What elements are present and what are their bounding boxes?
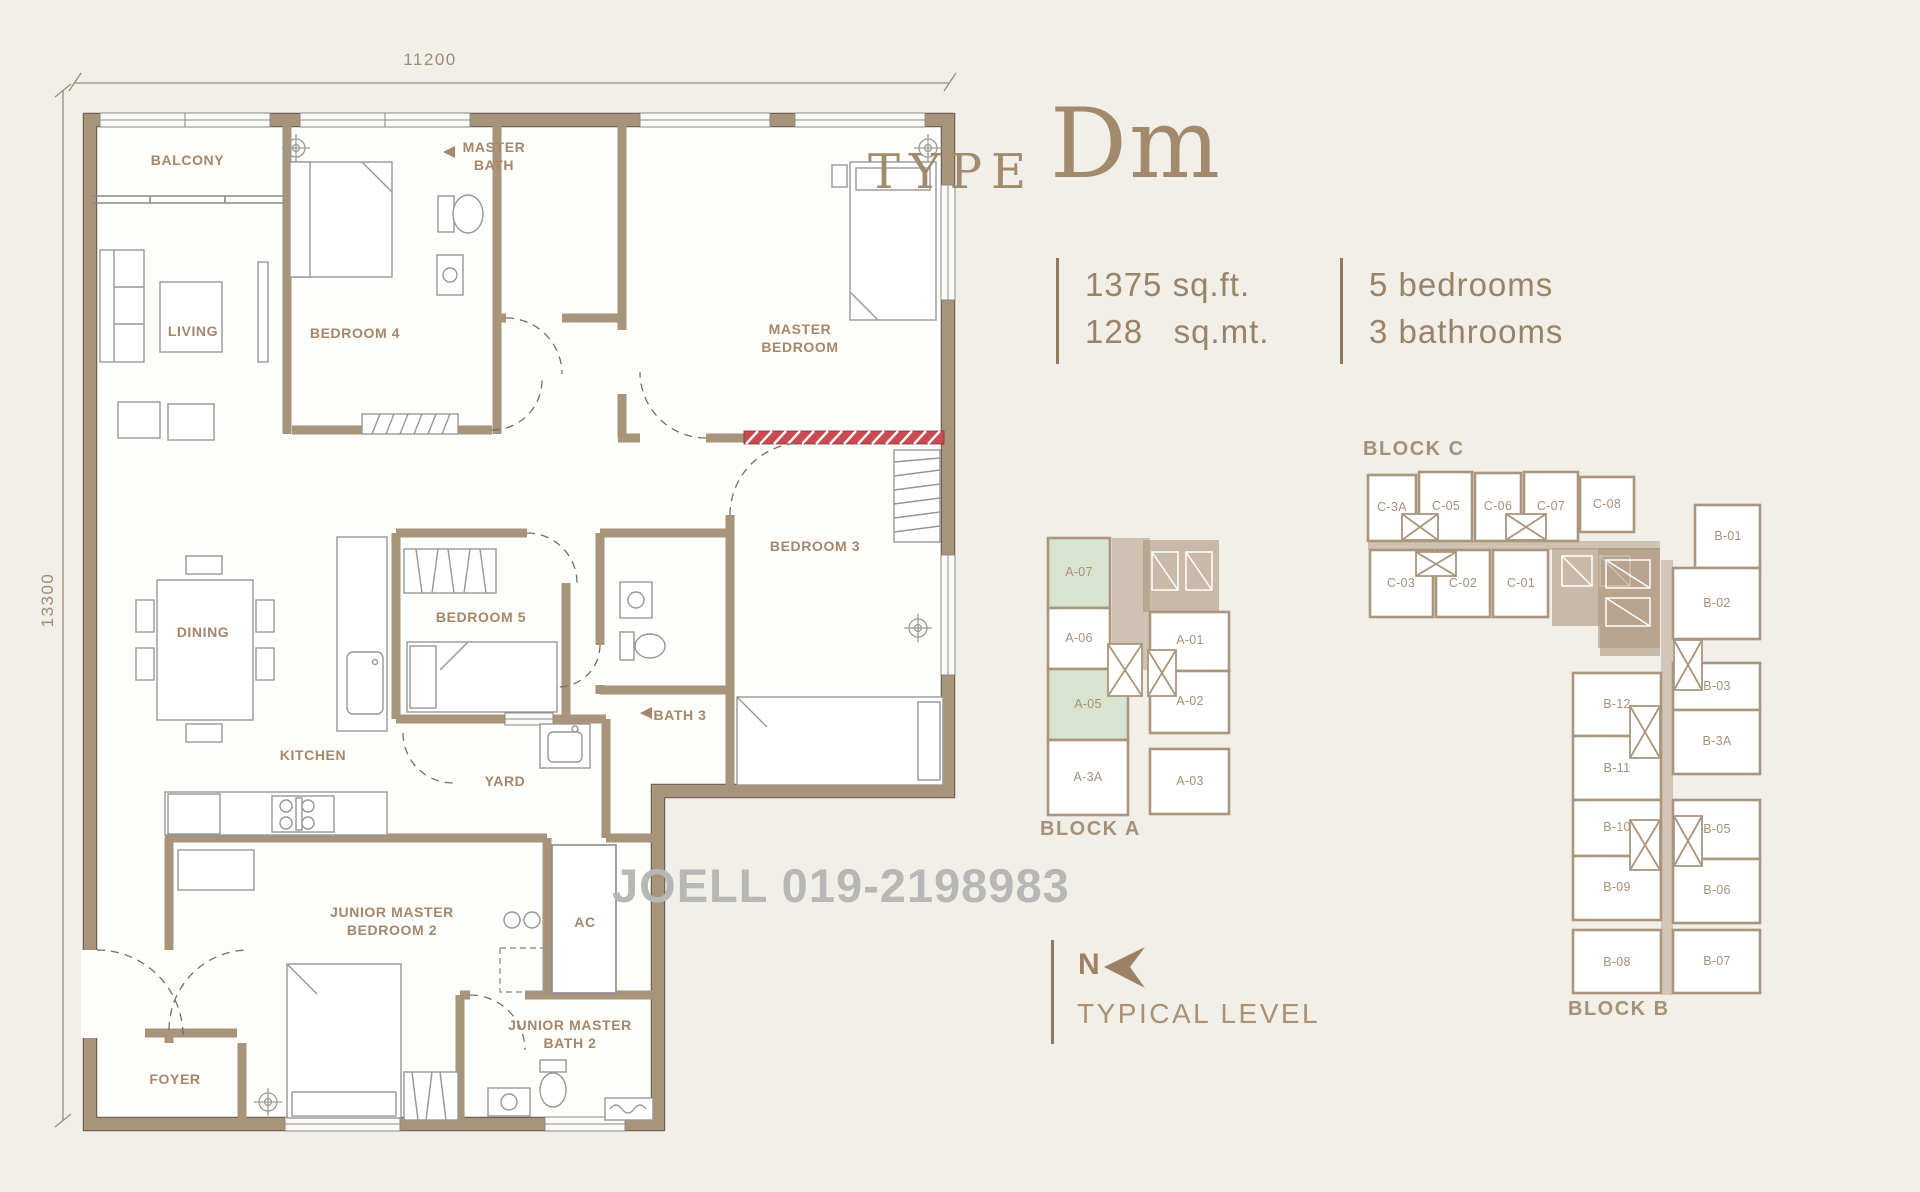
living-rug xyxy=(160,282,222,352)
laundry-sink-icon xyxy=(540,724,590,768)
bed-icon xyxy=(407,642,557,712)
unit-label: C-01 xyxy=(1489,576,1553,590)
room-label-yard: YARD xyxy=(455,772,555,790)
room-label-bedroom3: BEDROOM 3 xyxy=(745,537,885,555)
unit-label: C-07 xyxy=(1519,499,1583,513)
shower-icon xyxy=(605,1098,653,1120)
toilet-icon xyxy=(438,195,483,233)
room-label-living: LIVING xyxy=(143,322,243,340)
compass-divider xyxy=(1051,940,1054,1044)
room-label-bedroom4: BEDROOM 4 xyxy=(295,324,415,342)
floorplan-page: 11200 13300 BALCONY LIVING BEDROOM 4 MAS… xyxy=(0,0,1920,1192)
spec-bedrooms: 5 bedrooms xyxy=(1369,262,1563,309)
unit-label: A-05 xyxy=(1056,697,1120,711)
unit-label: B-12 xyxy=(1585,697,1649,711)
spec-rooms: 5 bedrooms 3 bathrooms xyxy=(1340,258,1563,364)
typical-level-label: TYPICAL LEVEL xyxy=(1077,998,1320,1030)
unit-label: B-3A xyxy=(1685,734,1749,748)
spec-area-sqmt: 128 sq.mt. xyxy=(1085,309,1269,356)
unit-label: B-01 xyxy=(1696,529,1760,543)
unit-label: B-08 xyxy=(1585,955,1649,969)
spec-bathrooms: 3 bathrooms xyxy=(1369,309,1563,356)
fridge-icon xyxy=(168,794,220,834)
room-label-junior-master-bedroom2: JUNIOR MASTER BEDROOM 2 xyxy=(312,903,472,939)
unit-label: B-07 xyxy=(1685,954,1749,968)
room-label-ac: AC xyxy=(555,913,615,931)
entrance-opening xyxy=(81,950,99,1038)
room-label-dining: DINING xyxy=(153,623,253,641)
unit-label: A-02 xyxy=(1158,694,1222,708)
dimension-height: 13300 xyxy=(38,560,58,640)
spec-area-sqft: 1375 sq.ft. xyxy=(1085,262,1269,309)
room-label-master-bath: MASTER BATH xyxy=(455,138,533,174)
block-a-label: BLOCK A xyxy=(1040,818,1141,841)
title-prefix: TYPE xyxy=(868,144,1035,200)
unit-label: B-10 xyxy=(1585,820,1649,834)
sink-icon xyxy=(437,255,463,295)
bed-icon xyxy=(290,162,392,277)
sink-icon xyxy=(620,582,652,618)
bed-icon xyxy=(737,697,943,785)
dining-table-icon xyxy=(136,556,274,742)
block-c-label: BLOCK C xyxy=(1363,438,1465,461)
north-arrow-icon xyxy=(1100,944,1148,992)
block-b-label: BLOCK B xyxy=(1568,998,1670,1021)
wardrobe-icon xyxy=(894,450,940,542)
unit-label: B-03 xyxy=(1685,679,1749,693)
unit-label: B-02 xyxy=(1685,596,1749,610)
room-label-master-bedroom: MASTER BEDROOM xyxy=(735,320,865,356)
toilet-icon xyxy=(540,1060,566,1107)
unit-label: A-06 xyxy=(1047,631,1111,645)
title-name: Dm xyxy=(1050,96,1222,192)
unit-label: A-3A xyxy=(1056,770,1120,784)
unit-label: B-09 xyxy=(1585,880,1649,894)
room-label-foyer: FOYER xyxy=(125,1070,225,1088)
unit-label: A-07 xyxy=(1047,565,1111,579)
wardrobe-icon xyxy=(362,414,458,434)
sink-icon xyxy=(488,1088,530,1116)
dimension-width: 11200 xyxy=(375,50,485,70)
bed-icon xyxy=(287,964,401,1118)
room-label-junior-master-bath2: JUNIOR MASTER BATH 2 xyxy=(490,1016,650,1052)
room-label-bath3: BATH 3 xyxy=(630,706,730,724)
north-label: N xyxy=(1078,948,1100,982)
stair-icon xyxy=(1108,644,1176,696)
sofa-icon xyxy=(100,250,144,362)
spec-area: 1375 sq.ft. 128 sq.mt. xyxy=(1056,258,1269,364)
room-label-balcony: BALCONY xyxy=(130,151,245,169)
stove-icon xyxy=(272,796,334,832)
agent-watermark: JOELL 019-2198983 xyxy=(612,858,1070,913)
toilet-icon xyxy=(620,632,665,660)
unit-label: A-01 xyxy=(1158,633,1222,647)
dresser-icon xyxy=(178,850,254,890)
wardrobe-icon xyxy=(404,1072,458,1120)
unit-label: C-03 xyxy=(1369,576,1433,590)
wardrobe-icon xyxy=(404,549,496,593)
keyplan-block-b xyxy=(1573,505,1760,995)
red-hatch-wall xyxy=(744,431,944,444)
unit-label: C-08 xyxy=(1575,497,1639,511)
tv-console xyxy=(258,262,268,362)
unit-label: B-06 xyxy=(1685,883,1749,897)
unit-label: B-05 xyxy=(1685,822,1749,836)
room-label-kitchen: KITCHEN xyxy=(253,746,373,764)
unit-label: B-11 xyxy=(1585,761,1649,775)
unit-label: A-03 xyxy=(1158,774,1222,788)
room-label-bedroom5: BEDROOM 5 xyxy=(411,608,551,626)
unit-label: C-02 xyxy=(1431,576,1495,590)
